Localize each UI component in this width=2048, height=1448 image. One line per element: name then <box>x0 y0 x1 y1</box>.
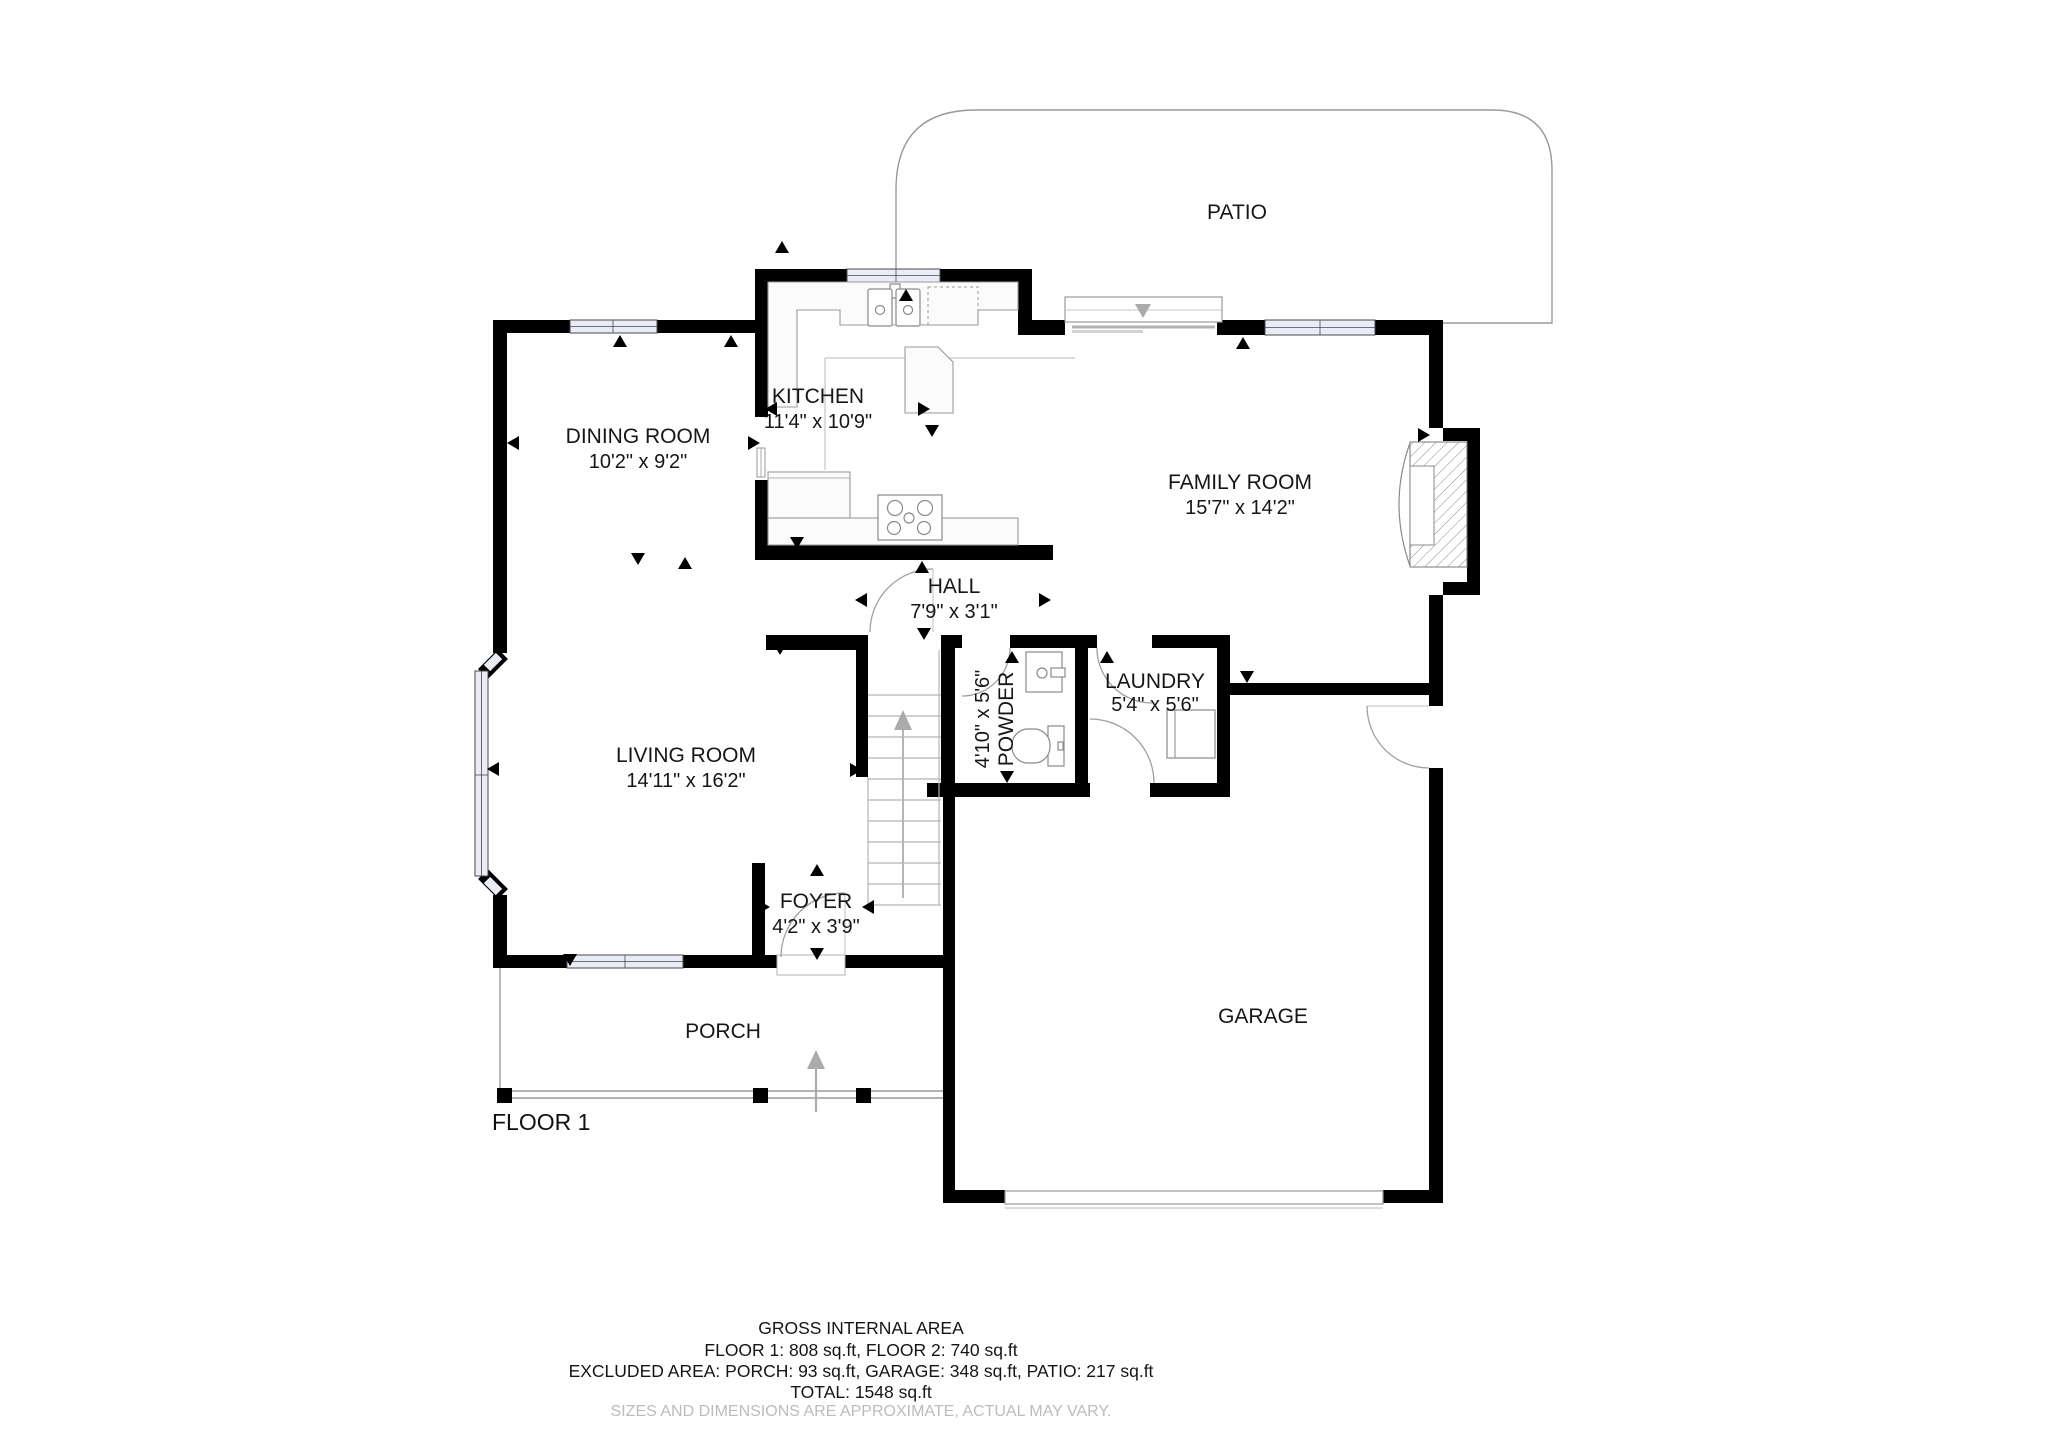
room-dims-living: 14'11" x 16'2" <box>626 770 745 792</box>
room-dims-kitchen: 11'4" x 10'9" <box>764 411 872 433</box>
washer <box>1167 710 1215 758</box>
kitchen-pantry <box>905 347 953 413</box>
room-label-laundry: LAUNDRY <box>1105 670 1205 693</box>
fireplace <box>1399 442 1467 567</box>
kitchen-dining-opening <box>757 448 765 477</box>
room-label-powder-group: 4'10" x 5'6" POWDER <box>972 670 1018 769</box>
garage-side-door <box>1367 706 1429 768</box>
floor-plan: PATIO KITCHEN 11'4" x 10'9" DINING ROOM … <box>0 0 2048 1448</box>
living-room-window <box>567 955 683 968</box>
kitchen-cabinet <box>768 472 850 518</box>
footer-floors: FLOOR 1: 808 sq.ft, FLOOR 2: 740 sq.ft <box>704 1340 1017 1360</box>
room-dims-family: 15'7" x 14'2" <box>1185 497 1295 519</box>
room-dims-foyer: 4'2" x 3'9" <box>772 916 859 938</box>
room-label-hall: HALL <box>928 575 981 598</box>
toilet <box>1012 726 1064 766</box>
sliding-patio-door <box>1065 297 1222 332</box>
garage-door <box>1005 1191 1383 1208</box>
footer-disclaimer: SIZES AND DIMENSIONS ARE APPROXIMATE, AC… <box>611 1403 1112 1420</box>
room-label-dining: DINING ROOM <box>566 425 711 448</box>
room-dims-dining: 10'2" x 9'2" <box>589 451 688 473</box>
floor-label: FLOOR 1 <box>492 1109 590 1135</box>
laundry-garage-door <box>1090 719 1154 783</box>
room-label-powder: POWDER <box>995 672 1018 767</box>
powder-sink <box>1026 652 1065 692</box>
room-label-kitchen: KITCHEN <box>772 385 864 408</box>
family-room-window <box>1265 320 1375 335</box>
porch-post <box>497 1088 512 1103</box>
room-dims-powder: 4'10" x 5'6" <box>972 670 994 769</box>
room-label-garage: GARAGE <box>1218 1005 1308 1028</box>
footer-excluded: EXCLUDED AREA: PORCH: 93 sq.ft, GARAGE: … <box>569 1361 1154 1381</box>
dining-window <box>570 320 657 333</box>
porch-post <box>856 1088 871 1103</box>
room-dims-laundry: 5'4" x 5'6" <box>1111 694 1198 716</box>
porch-entry-arrow <box>807 1050 825 1112</box>
bay-window <box>475 656 499 892</box>
footer: GROSS INTERNAL AREA FLOOR 1: 808 sq.ft, … <box>569 1318 1154 1420</box>
stove <box>878 495 942 540</box>
room-label-family: FAMILY ROOM <box>1168 471 1312 494</box>
room-label-patio: PATIO <box>1207 201 1267 224</box>
room-labels: PATIO KITCHEN 11'4" x 10'9" DINING ROOM … <box>492 201 1312 1135</box>
laundry-fixtures <box>1167 710 1215 758</box>
porch-post <box>753 1088 768 1103</box>
room-dims-hall: 7'9" x 3'1" <box>910 601 997 623</box>
footer-title: GROSS INTERNAL AREA <box>758 1318 964 1338</box>
kitchen-window <box>847 269 940 282</box>
room-label-foyer: FOYER <box>780 890 852 913</box>
footer-total: TOTAL: 1548 sq.ft <box>790 1382 932 1402</box>
powder-fixtures <box>1012 652 1065 766</box>
stairs-up-arrow <box>894 710 912 898</box>
staircase <box>868 650 941 908</box>
room-label-living: LIVING ROOM <box>616 744 756 767</box>
room-label-porch: PORCH <box>685 1020 761 1043</box>
